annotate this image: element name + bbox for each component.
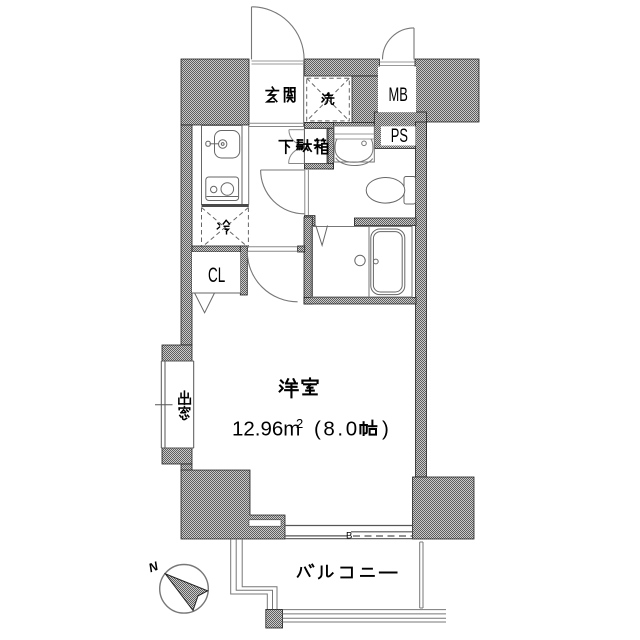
svg-text:2: 2: [296, 416, 303, 431]
svg-text:MB: MB: [389, 83, 408, 105]
svg-text:B: B: [346, 531, 352, 542]
svg-text:(8.0: (8.0: [314, 418, 360, 441]
svg-text:12.96m: 12.96m: [232, 418, 300, 441]
svg-text:CL: CL: [208, 263, 225, 287]
svg-text:PS: PS: [391, 124, 408, 146]
svg-text:): ): [382, 418, 389, 441]
